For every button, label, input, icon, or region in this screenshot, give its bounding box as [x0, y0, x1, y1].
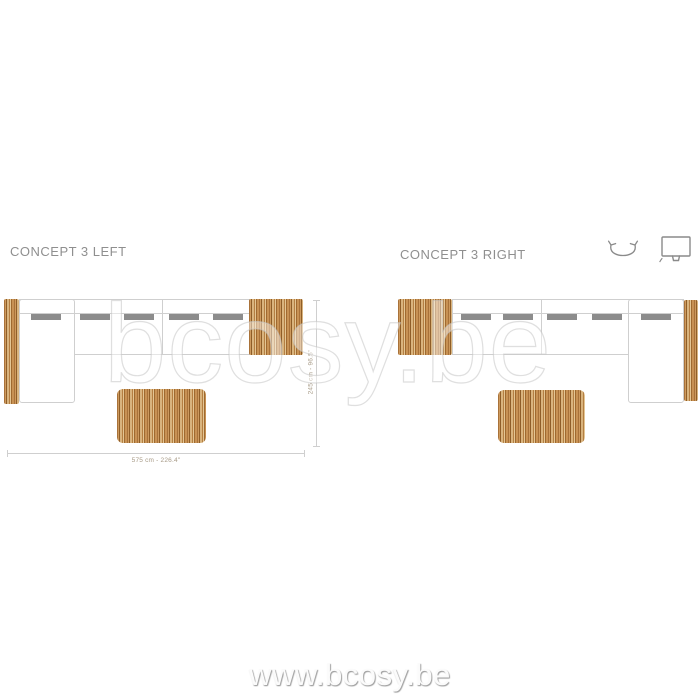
depth-dimension-line	[316, 300, 317, 447]
seat-divider	[162, 299, 163, 355]
width-dimension-label: 575 cm - 226.4"	[7, 457, 305, 464]
teak-side-panel-right	[684, 300, 698, 401]
furniture-configuration-sheet: CONCEPT 3 LEFT CONCEPT 3 RIGHT	[0, 0, 700, 700]
dimension-tick	[313, 300, 320, 301]
seat-cushion	[213, 314, 243, 320]
depth-dimension-label: 245 cm - 96.5"	[308, 350, 315, 395]
dimension-tick	[304, 450, 305, 457]
seat-cushion	[124, 314, 154, 320]
bottom-watermark: www.bcosy.be	[249, 658, 451, 692]
rotate-icon[interactable]	[606, 238, 640, 260]
concept-right-title: CONCEPT 3 RIGHT	[400, 247, 526, 262]
teak-coffee-table	[498, 390, 585, 443]
seat-cushion	[169, 314, 199, 320]
seat-cushion	[80, 314, 110, 320]
dimension-tick	[313, 446, 320, 447]
teak-coffee-table	[117, 389, 206, 443]
concept-left-title: CONCEPT 3 LEFT	[10, 244, 127, 259]
seat-divider	[541, 299, 542, 355]
seat-cushion	[592, 314, 622, 320]
dimension-tick	[7, 450, 8, 457]
teak-corner-table	[398, 299, 452, 355]
monitor-icon[interactable]	[658, 234, 694, 264]
seat-cushion	[641, 314, 671, 320]
seat-cushion	[31, 314, 61, 320]
seat-cushion	[547, 314, 577, 320]
seat-cushion	[503, 314, 533, 320]
width-dimension-line	[7, 453, 305, 454]
teak-side-panel-left	[4, 299, 19, 404]
seat-cushion	[461, 314, 491, 320]
teak-corner-table	[249, 299, 303, 355]
